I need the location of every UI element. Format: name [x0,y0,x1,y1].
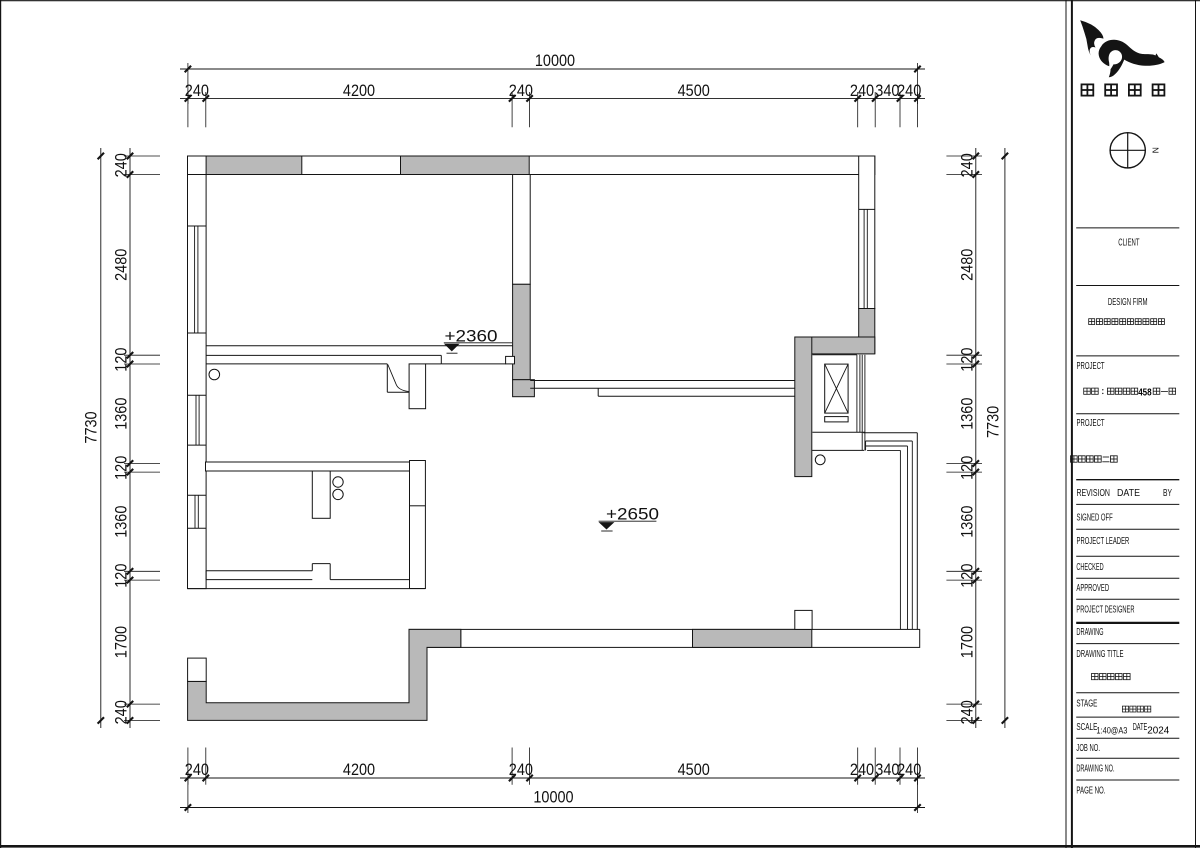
svg-text:2024: 2024 [1147,725,1169,736]
svg-text:JOB NO.: JOB NO. [1076,743,1100,754]
svg-text:4200: 4200 [343,81,375,100]
svg-text:STAGE: STAGE [1076,699,1097,710]
svg-text:2480: 2480 [112,249,131,281]
svg-text:240: 240 [112,700,131,724]
svg-text:340: 340 [875,81,899,100]
svg-text:2480: 2480 [957,249,976,281]
svg-text:PROJECT: PROJECT [1077,361,1106,372]
svg-text:1360: 1360 [957,506,976,538]
svg-text:120: 120 [112,348,131,372]
svg-text:7730: 7730 [82,411,101,443]
svg-text:1360: 1360 [112,506,131,538]
svg-text:240: 240 [850,81,874,100]
svg-text:SIGNED OFF: SIGNED OFF [1077,512,1113,523]
svg-text:240: 240 [185,760,209,779]
svg-text:DATE: DATE [1117,488,1140,499]
svg-text:DRAWING TITLE: DRAWING TITLE [1076,649,1123,660]
svg-text:240: 240 [850,760,874,779]
svg-text:SCALE: SCALE [1076,722,1097,733]
svg-text:PROJECT DESIGNER: PROJECT DESIGNER [1076,605,1134,616]
svg-text:PROJECT LEADER: PROJECT LEADER [1077,536,1130,547]
svg-text:DRAWING: DRAWING [1076,627,1103,638]
svg-text:340: 340 [875,760,899,779]
svg-text:240: 240 [185,81,209,100]
svg-text:DRAWING NO.: DRAWING NO. [1076,764,1114,775]
svg-text:240: 240 [509,760,533,779]
svg-text:PAGE NO.: PAGE NO. [1076,786,1105,797]
svg-text:10000: 10000 [533,788,573,807]
svg-text:+2650: +2650 [606,505,659,524]
svg-text:1700: 1700 [957,626,976,658]
svg-text:N: N [1150,147,1160,153]
svg-text:CHECKED: CHECKED [1076,562,1103,573]
svg-text:APPROVED: APPROVED [1076,583,1109,594]
svg-text:REVISION: REVISION [1077,488,1111,499]
svg-text:7730: 7730 [984,406,1003,438]
svg-text:240: 240 [112,153,131,177]
svg-text:120: 120 [957,348,976,372]
svg-text:1:40@A3: 1:40@A3 [1096,725,1127,735]
svg-text:4500: 4500 [678,760,710,779]
svg-text:BY: BY [1163,488,1172,499]
svg-text:240: 240 [897,81,921,100]
svg-text:240: 240 [509,81,533,100]
svg-text:1700: 1700 [112,626,131,658]
svg-text:120: 120 [112,456,131,480]
svg-text:458: 458 [1138,386,1152,398]
svg-text:120: 120 [112,564,131,588]
svg-text:CLIENT: CLIENT [1118,238,1140,249]
svg-text:10000: 10000 [535,51,575,70]
svg-text:4500: 4500 [678,81,710,100]
svg-text:240: 240 [897,760,921,779]
svg-text:240: 240 [957,153,976,177]
svg-text:DATE: DATE [1133,722,1148,733]
svg-text:120: 120 [957,456,976,480]
svg-text:DESIGN FIRM: DESIGN FIRM [1108,297,1148,308]
svg-text:4200: 4200 [343,760,375,779]
svg-text:240: 240 [957,700,976,724]
svg-text:1360: 1360 [957,398,976,430]
svg-text:1360: 1360 [112,398,131,430]
svg-text:120: 120 [957,564,976,588]
svg-text:PROJECT: PROJECT [1077,418,1106,429]
